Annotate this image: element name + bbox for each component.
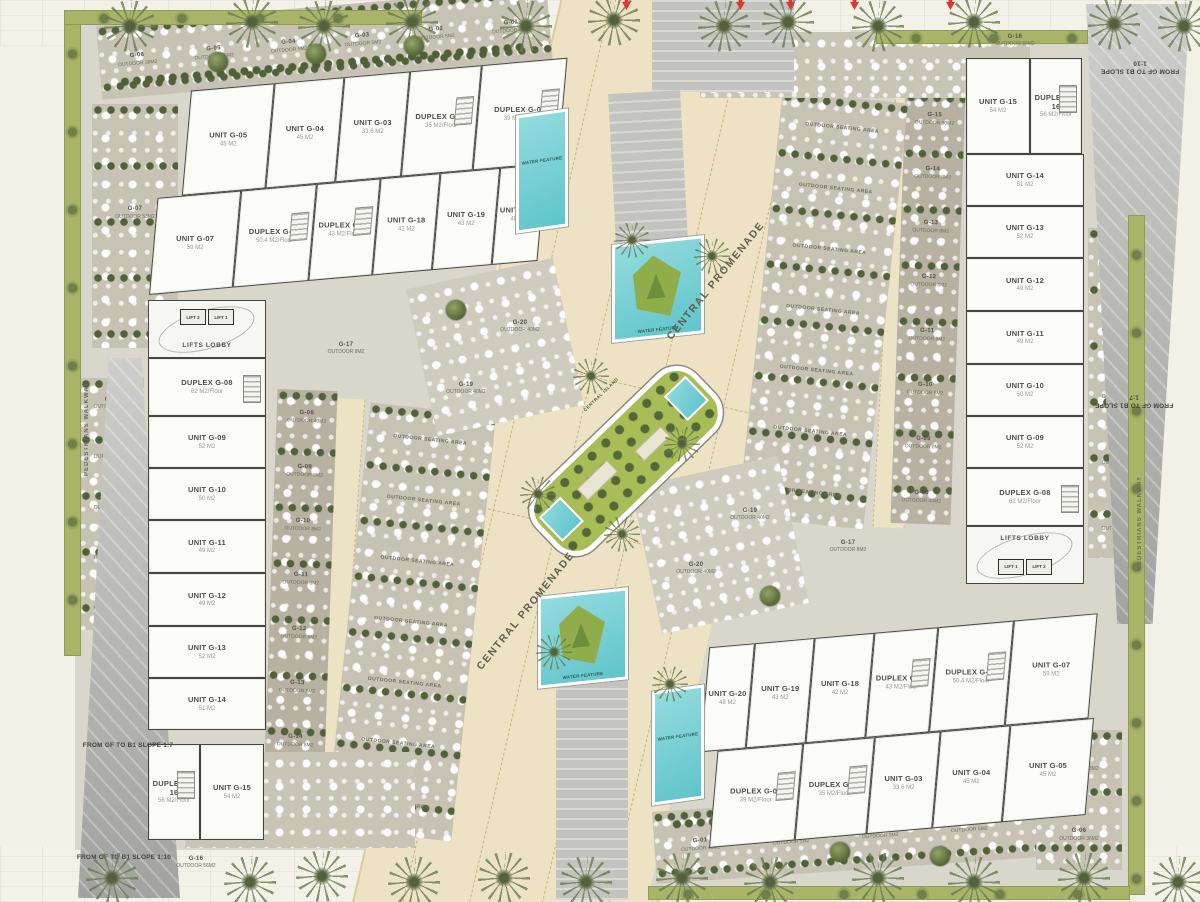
unit-cell: DUPLEX G-0862 M2/Floor xyxy=(966,468,1084,526)
outdoor-area-label: G-19OUTDOOR 40M2 xyxy=(438,382,494,395)
unit-cell: UNIT G-1842 M2 xyxy=(372,173,440,275)
palm-tree xyxy=(298,0,350,52)
tree xyxy=(404,36,424,56)
outdoor-area-label: G-09OUTDOOR 8M2 xyxy=(286,464,323,478)
right-building-side-wing: UNIT G-1554 M2 DUPLEX G-1656 M2/Floor UN… xyxy=(966,58,1084,584)
palm-tree xyxy=(694,238,730,274)
outdoor-area-label: G-20OUTDOOR 40M2 xyxy=(492,320,548,333)
outdoor-area-label: G-11OUTDOOR 8M2 xyxy=(282,572,319,586)
palm-tree xyxy=(664,426,700,462)
unit-cell: UNIT G-0333.6 M2 xyxy=(335,71,410,182)
lifts-lobby-label: LIFTS LOBBY xyxy=(1000,535,1049,542)
unit-cell: DUPLEX G-1656 M2/Floor xyxy=(148,744,200,840)
unit-cell: UNIT G-0333.6 M2 xyxy=(866,731,940,834)
outdoor-area-label: G-11OUTDOOR 8M2 xyxy=(908,328,945,342)
outdoor-area-label: G-10OUTDOOR 8M2 xyxy=(907,382,944,396)
outdoor-seating-area-label: OUTDOOR SEATING AREA xyxy=(380,554,454,568)
unit-cell: UNIT G-1352 M2 xyxy=(148,626,266,678)
island-pool xyxy=(664,376,709,421)
unit-cell: UNIT G-0759 M2 xyxy=(149,191,241,295)
outdoor-area-label: G-14OUTDOOR 8M2 xyxy=(277,734,314,748)
palm-tree xyxy=(388,856,440,902)
palm-tree xyxy=(560,856,612,902)
unit-cell: DUPLEX G-0139 M2/Floor xyxy=(709,743,803,848)
palm-tree xyxy=(296,850,348,902)
unit-cell: UNIT G-1451 M2 xyxy=(966,154,1084,206)
palm-tree xyxy=(104,0,156,52)
palm-tree xyxy=(1058,852,1110,902)
unit-cell: DUPLEX G-0235 M2/Floor xyxy=(795,737,875,840)
outdoor-seating-area-label: OUTDOOR SEATING AREA xyxy=(361,737,435,751)
outdoor-area-label: G-19OUTDOOR 40M2 xyxy=(722,508,778,521)
unit-cell: UNIT G-0445 M2 xyxy=(932,725,1010,828)
unit-cell: UNIT G-0445 M2 xyxy=(265,77,344,188)
unit-cell: UNIT G-0952 M2 xyxy=(966,416,1084,468)
outdoor-area-label: G-08OUTDOOR 40M2 xyxy=(287,410,327,425)
outdoor-area-label: G-20OUTDOOR 40M2 xyxy=(668,562,724,575)
unit-cell: DUPLEX G-1743 M2/Floor xyxy=(865,627,938,738)
unit-cell: UNIT G-1149 M2 xyxy=(966,311,1084,364)
tree xyxy=(208,52,228,72)
unit-cell: UNIT G-0952 M2 xyxy=(148,416,266,468)
palm-tree xyxy=(656,852,708,902)
unit-cell: UNIT G-1352 M2 xyxy=(966,206,1084,258)
outdoor-seating-area-label: OUTDOOR SEATING AREA xyxy=(792,242,866,256)
unit-cell: UNIT G-0545 M2 xyxy=(182,83,275,196)
unit-cell: UNIT G-1249 M2 xyxy=(966,258,1084,311)
outdoor-seating-area-label: OUTDOOR SEATING AREA xyxy=(805,121,879,135)
palm-tree xyxy=(948,0,1000,48)
left-building-top-wing: UNIT G-0545 M2 UNIT G-0445 M2 UNIT G-033… xyxy=(140,58,580,294)
palm-tree xyxy=(698,0,750,52)
unit-cell: UNIT G-1249 M2 xyxy=(148,573,266,626)
palm-tree xyxy=(226,0,278,48)
outdoor-seating-area-label: OUTDOOR SEATING AREA xyxy=(387,494,461,508)
outdoor-area-label: G-13OUTDOOR 8M2 xyxy=(912,220,949,234)
palm-tree xyxy=(86,852,138,902)
palm-tree xyxy=(744,856,796,902)
lift-1: LIFT 1 xyxy=(998,559,1024,575)
lifts-lobby: LIFT 2 LIFT 1 LIFTS LOBBY xyxy=(148,300,266,358)
palm-tree xyxy=(224,856,276,902)
floor-plan-canvas: G-06OUTDOOR 36M2 G-05OUTDOOR 12M2 G-04OU… xyxy=(0,0,1200,902)
unit-cell: DUPLEX G-0862 M2/Floor xyxy=(148,358,266,416)
outdoor-seating-area-label: OUTDOOR SEATING AREA xyxy=(786,303,860,317)
lift-2: LIFT 2 xyxy=(180,309,206,325)
outdoor-area-label: G-13OUTDOOR 8M2 xyxy=(279,680,316,694)
pedestrian-greenway-left xyxy=(64,14,81,656)
slope-label: FROM GF TO B1 SLOPE 1:10 xyxy=(1096,58,1184,74)
palm-tree xyxy=(500,0,552,52)
unit-cell: UNIT G-1554 M2 xyxy=(966,58,1030,154)
palm-tree xyxy=(852,852,904,902)
unit-cell: UNIT G-1050 M2 xyxy=(966,364,1084,416)
unit-cell: DUPLEX G-0650.4 M2/Floor xyxy=(233,184,317,288)
lifts-lobby: LIFTS LOBBY LIFT 1 LIFT 2 xyxy=(966,526,1084,584)
palm-tree xyxy=(520,476,556,512)
lifts-lobby-label: LIFTS LOBBY xyxy=(182,342,231,349)
palm-tree xyxy=(852,0,904,52)
palm-tree xyxy=(573,358,609,394)
outdoor-area-label: G-10OUTDOOR 8M2 xyxy=(284,518,321,532)
outdoor-area-label: G-08OUTDOOR 40M2 xyxy=(901,490,941,505)
palm-tree xyxy=(536,634,572,670)
unit-cell: UNIT G-1943 M2 xyxy=(432,168,500,270)
tree xyxy=(830,842,850,862)
slope-label: FROM GF TO B1 SLOPE 1:7 xyxy=(80,742,176,750)
outdoor-area-label: G-12OUTDOOR 8M2 xyxy=(280,626,317,640)
outdoor-area-label: G-17OUTDOOR 8M2 xyxy=(820,540,876,553)
unit-cell: UNIT G-1943 M2 xyxy=(746,638,815,748)
outdoor-area-label: G-12OUTDOOR 8M2 xyxy=(910,274,947,288)
outdoor-area-label: G-09OUTDOOR 8M2 xyxy=(905,436,942,450)
seating-patch xyxy=(406,258,584,436)
outdoor-area-label: G-16OUTDOOR 56M2 xyxy=(166,856,226,869)
tree xyxy=(930,846,950,866)
outdoor-area-label: G-06OUTDOOR 36M2 xyxy=(117,51,157,68)
palm-tree xyxy=(478,852,530,902)
palm-tree xyxy=(1158,0,1200,52)
unit-cell: DUPLEX G-0235 M2/Floor xyxy=(401,65,482,176)
palm-tree xyxy=(614,222,650,258)
lift-1: LIFT 1 xyxy=(208,309,234,325)
slope-label: FROM GF TO B1 SLOPE 1:7 xyxy=(1090,392,1178,408)
water-feature-pool: WATER FEATURE xyxy=(652,684,704,805)
right-building-bottom-wing: UNIT G-2048 M2 UNIT G-1943 M2 UNIT G-184… xyxy=(700,611,1140,847)
palm-tree xyxy=(588,0,640,46)
outdoor-seating-area-label: OUTDOOR SEATING AREA xyxy=(367,676,441,690)
pedestrians-walkway-label-left: PEDESTRIANS WALKWAY xyxy=(84,356,90,476)
unit-cell: UNIT G-0545 M2 xyxy=(1002,718,1094,822)
tree xyxy=(446,300,466,320)
palm-tree xyxy=(948,856,1000,902)
ramp-wedge-top xyxy=(608,90,688,244)
outdoor-area-label: G-06OUTDOOR 36M2 xyxy=(1059,828,1098,841)
palm-tree xyxy=(762,0,814,48)
outdoor-area-label: G-17OUTDOOR 8M2 xyxy=(318,342,374,355)
water-feature-label: WATER FEATURE xyxy=(519,154,565,166)
outdoor-seating-area-label: OUTDOOR SEATING AREA xyxy=(393,433,467,447)
unit-cell: UNIT G-1842 M2 xyxy=(806,633,875,743)
outdoor-area-label: G-15OUTDOOR 50M2 xyxy=(915,112,955,127)
water-feature-label: WATER FEATURE xyxy=(655,731,701,743)
pedestrians-walkway-label-right: PEDESTRIANS WALKWAY xyxy=(1137,430,1143,570)
tree xyxy=(306,44,326,64)
palm-tree xyxy=(1152,856,1200,902)
unit-cell: UNIT G-1554 M2 xyxy=(200,744,264,840)
unit-cell: UNIT G-1149 M2 xyxy=(148,520,266,573)
lift-2: LIFT 2 xyxy=(1026,559,1052,575)
palm-tree xyxy=(652,666,688,702)
left-building-side-wing: LIFT 2 LIFT 1 LIFTS LOBBY DUPLEX G-0862 … xyxy=(148,300,266,840)
unit-cell: UNIT G-1451 M2 xyxy=(148,678,266,730)
unit-cell: DUPLEX G-0650.4 M2/Floor xyxy=(929,621,1014,733)
outdoor-area-label: G-14OUTDOOR 8M2 xyxy=(914,166,951,180)
outdoor-seating-area-label: OUTDOOR SEATING AREA xyxy=(799,182,873,196)
outdoor-seating-area-label: OUTDOOR SEATING AREA xyxy=(779,364,853,378)
unit-cell: UNIT G-1050 M2 xyxy=(148,468,266,520)
unit-cell: UNIT G-0759 M2 xyxy=(1005,613,1098,726)
outdoor-seating-area-label: OUTDOOR SEATING AREA xyxy=(374,615,448,629)
palm-tree xyxy=(604,516,640,552)
unit-cell: DUPLEX G-1656 M2/Floor xyxy=(1030,58,1082,154)
outdoor-seating-area-label: OUTDOOR SEATING AREA xyxy=(773,425,847,439)
palm-tree xyxy=(1088,0,1140,50)
water-feature-islet xyxy=(633,253,681,320)
water-feature-pool: WATER FEATURE xyxy=(516,108,568,233)
tree xyxy=(760,586,780,606)
unit-cell: DUPLEX G-1743 M2/Floor xyxy=(308,178,380,281)
